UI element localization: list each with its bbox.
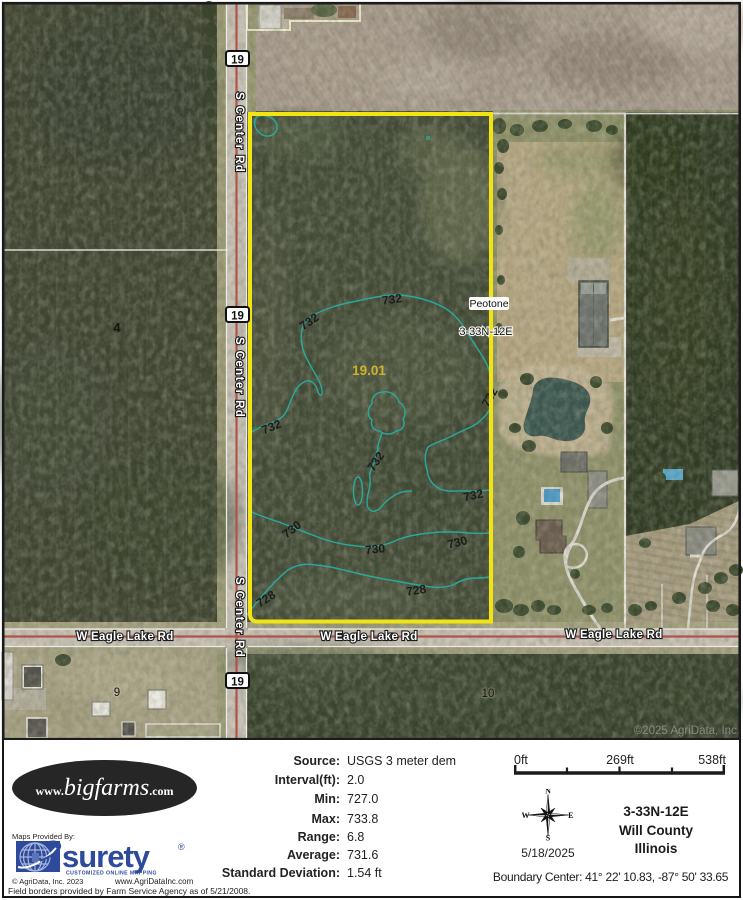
svg-text:0ft: 0ft bbox=[514, 753, 528, 767]
svg-text:N: N bbox=[545, 789, 551, 796]
svg-text:Peotone: Peotone bbox=[469, 298, 508, 310]
svg-text:©2025 AgriData, Inc.: ©2025 AgriData, Inc. bbox=[634, 725, 740, 737]
svg-text:S Center Rd: S Center Rd bbox=[233, 337, 245, 418]
svg-text:W Eagle Lake Rd: W Eagle Lake Rd bbox=[565, 629, 662, 641]
svg-text:3-33N-12E: 3-33N-12E bbox=[459, 326, 512, 338]
svg-text:19.01: 19.01 bbox=[352, 363, 386, 378]
svg-text:W Eagle Lake Rd: W Eagle Lake Rd bbox=[320, 631, 417, 643]
svg-text:4: 4 bbox=[113, 320, 121, 335]
svg-text:9: 9 bbox=[114, 687, 120, 699]
svg-text:10: 10 bbox=[482, 688, 495, 700]
svg-text:730: 730 bbox=[364, 541, 386, 557]
svg-text:S: S bbox=[546, 834, 551, 842]
svg-text:19: 19 bbox=[231, 55, 244, 67]
svg-text:538ft: 538ft bbox=[698, 753, 726, 767]
svg-text:W Eagle Lake Rd: W Eagle Lake Rd bbox=[76, 631, 173, 643]
svg-text:732: 732 bbox=[381, 291, 403, 308]
svg-text:S Center Rd: S Center Rd bbox=[233, 92, 245, 173]
svg-text:S Center Rd: S Center Rd bbox=[233, 577, 245, 658]
svg-text:19: 19 bbox=[231, 311, 244, 323]
svg-text:19: 19 bbox=[231, 677, 244, 689]
svg-text:269ft: 269ft bbox=[606, 753, 634, 767]
svg-text:728: 728 bbox=[405, 582, 427, 599]
svg-text:W: W bbox=[522, 811, 530, 820]
svg-text:E: E bbox=[568, 811, 573, 820]
